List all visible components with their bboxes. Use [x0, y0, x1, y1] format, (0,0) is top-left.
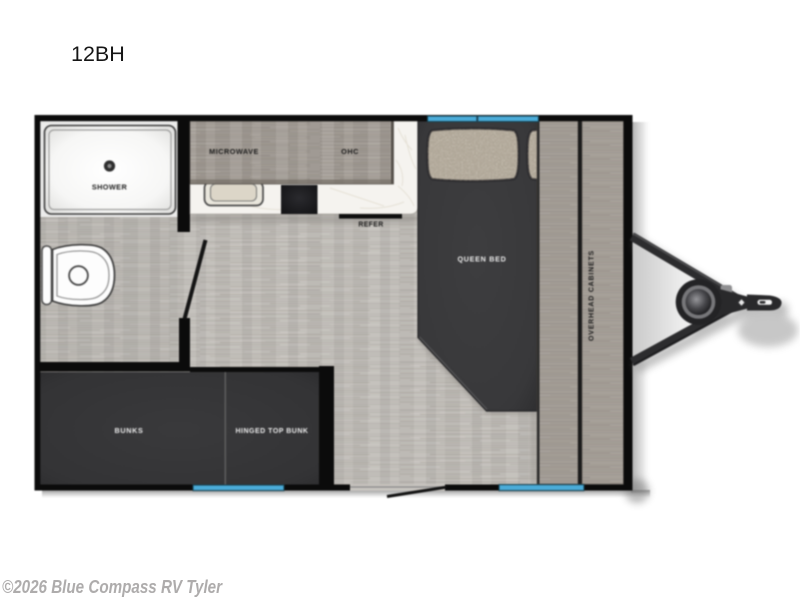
svg-text:QUEEN BED: QUEEN BED: [457, 255, 506, 264]
svg-text:MICROWAVE: MICROWAVE: [209, 147, 259, 156]
svg-text:REFER: REFER: [358, 222, 383, 229]
svg-text:BUNKS: BUNKS: [114, 426, 143, 435]
svg-text:OHC: OHC: [341, 147, 359, 156]
svg-text:OVERHEAD CABINETS: OVERHEAD CABINETS: [589, 250, 596, 341]
svg-text:SHOWER: SHOWER: [92, 183, 128, 192]
svg-text:HINGED TOP BUNK: HINGED TOP BUNK: [236, 428, 309, 435]
